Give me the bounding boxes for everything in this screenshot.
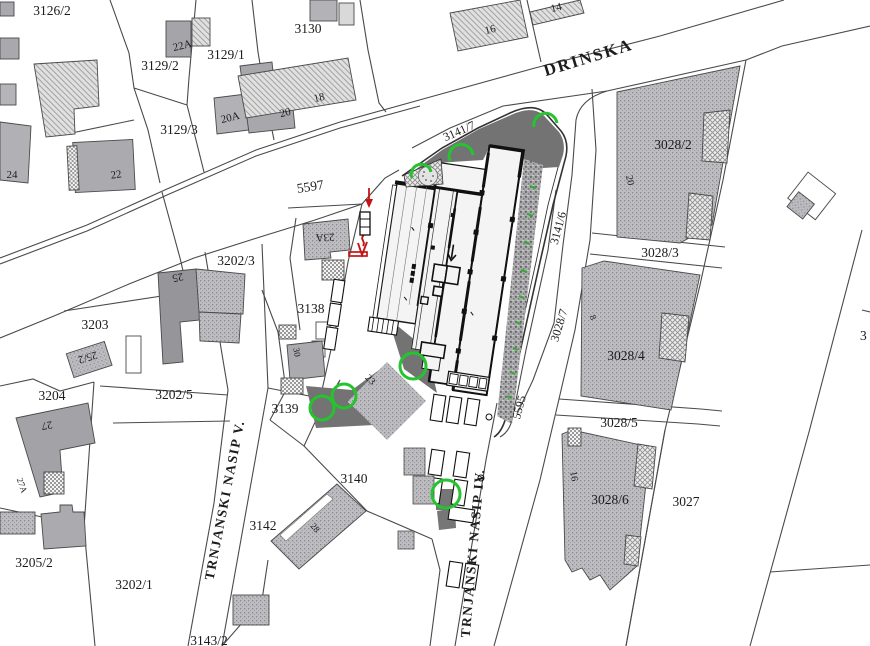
svg-text:3028/2: 3028/2 (654, 137, 692, 152)
svg-text:3126/2: 3126/2 (33, 3, 71, 18)
svg-text:23A: 23A (315, 231, 334, 244)
svg-text:3129/3: 3129/3 (160, 122, 198, 137)
svg-text:3028/5: 3028/5 (600, 415, 638, 430)
svg-text:3140: 3140 (341, 471, 368, 486)
svg-text:3203: 3203 (82, 317, 109, 332)
svg-text:3028/4: 3028/4 (607, 348, 645, 363)
svg-text:3028/6: 3028/6 (591, 492, 629, 507)
svg-text:3129/2: 3129/2 (141, 58, 179, 73)
svg-text:3129/1: 3129/1 (207, 47, 245, 62)
svg-text:3142: 3142 (250, 518, 277, 533)
svg-text:3027: 3027 (673, 494, 700, 509)
svg-text:3143/2: 3143/2 (190, 633, 228, 646)
svg-text:3139: 3139 (272, 401, 299, 416)
svg-text:16: 16 (567, 470, 580, 482)
svg-text:3130: 3130 (295, 21, 322, 36)
svg-text:22: 22 (110, 168, 123, 181)
svg-text:3204: 3204 (39, 388, 66, 403)
svg-text:3202/1: 3202/1 (115, 577, 153, 592)
svg-text:3138: 3138 (298, 301, 325, 316)
svg-text:3202/3: 3202/3 (217, 253, 255, 268)
svg-text:24: 24 (7, 169, 19, 181)
svg-text:3028/3: 3028/3 (641, 245, 679, 260)
svg-text:3: 3 (860, 328, 867, 343)
svg-text:3202/5: 3202/5 (155, 387, 193, 402)
svg-text:3205/2: 3205/2 (15, 555, 53, 570)
